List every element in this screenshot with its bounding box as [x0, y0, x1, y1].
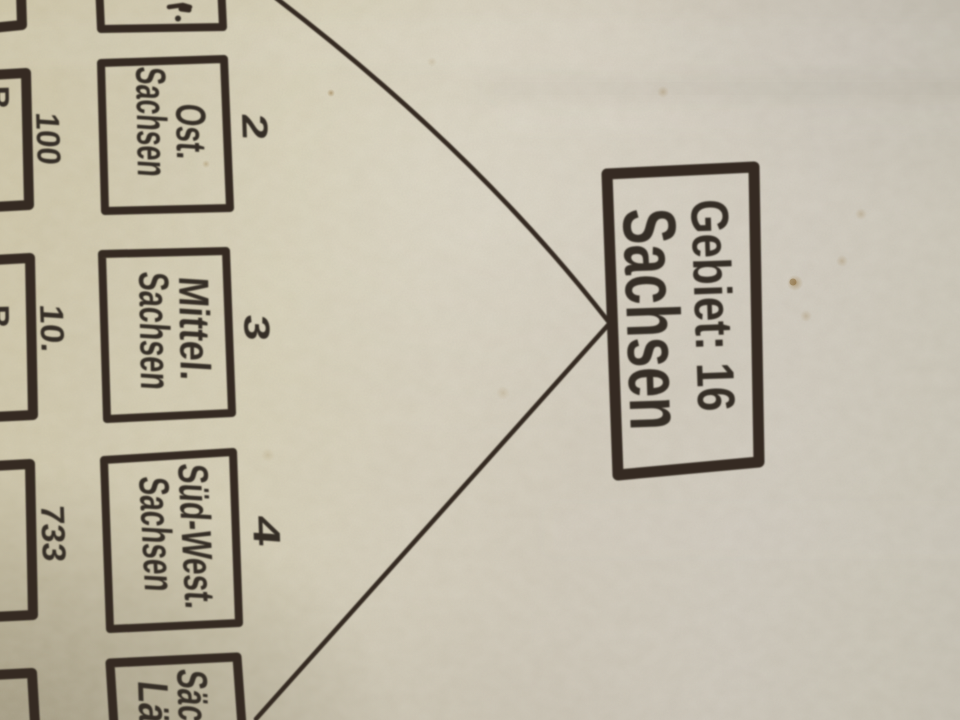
svg-text:10.: 10.	[32, 303, 71, 354]
svg-text:Sachsen: Sachsen	[129, 270, 178, 391]
svg-text:733: 733	[33, 503, 72, 563]
svg-text:Sachsen: Sachsen	[126, 65, 175, 178]
svg-text:2: 2	[234, 112, 276, 141]
svg-text:Sachsen: Sachsen	[129, 475, 182, 593]
svg-text:100: 100	[28, 111, 67, 166]
svg-text:Länd: Länd	[128, 679, 179, 720]
svg-text:Sachsen: Sachsen	[606, 207, 697, 432]
svg-text:B: B	[0, 85, 16, 109]
svg-text:4: 4	[244, 514, 287, 547]
svg-text:3: 3	[236, 313, 278, 342]
svg-text:B: B	[0, 304, 16, 328]
